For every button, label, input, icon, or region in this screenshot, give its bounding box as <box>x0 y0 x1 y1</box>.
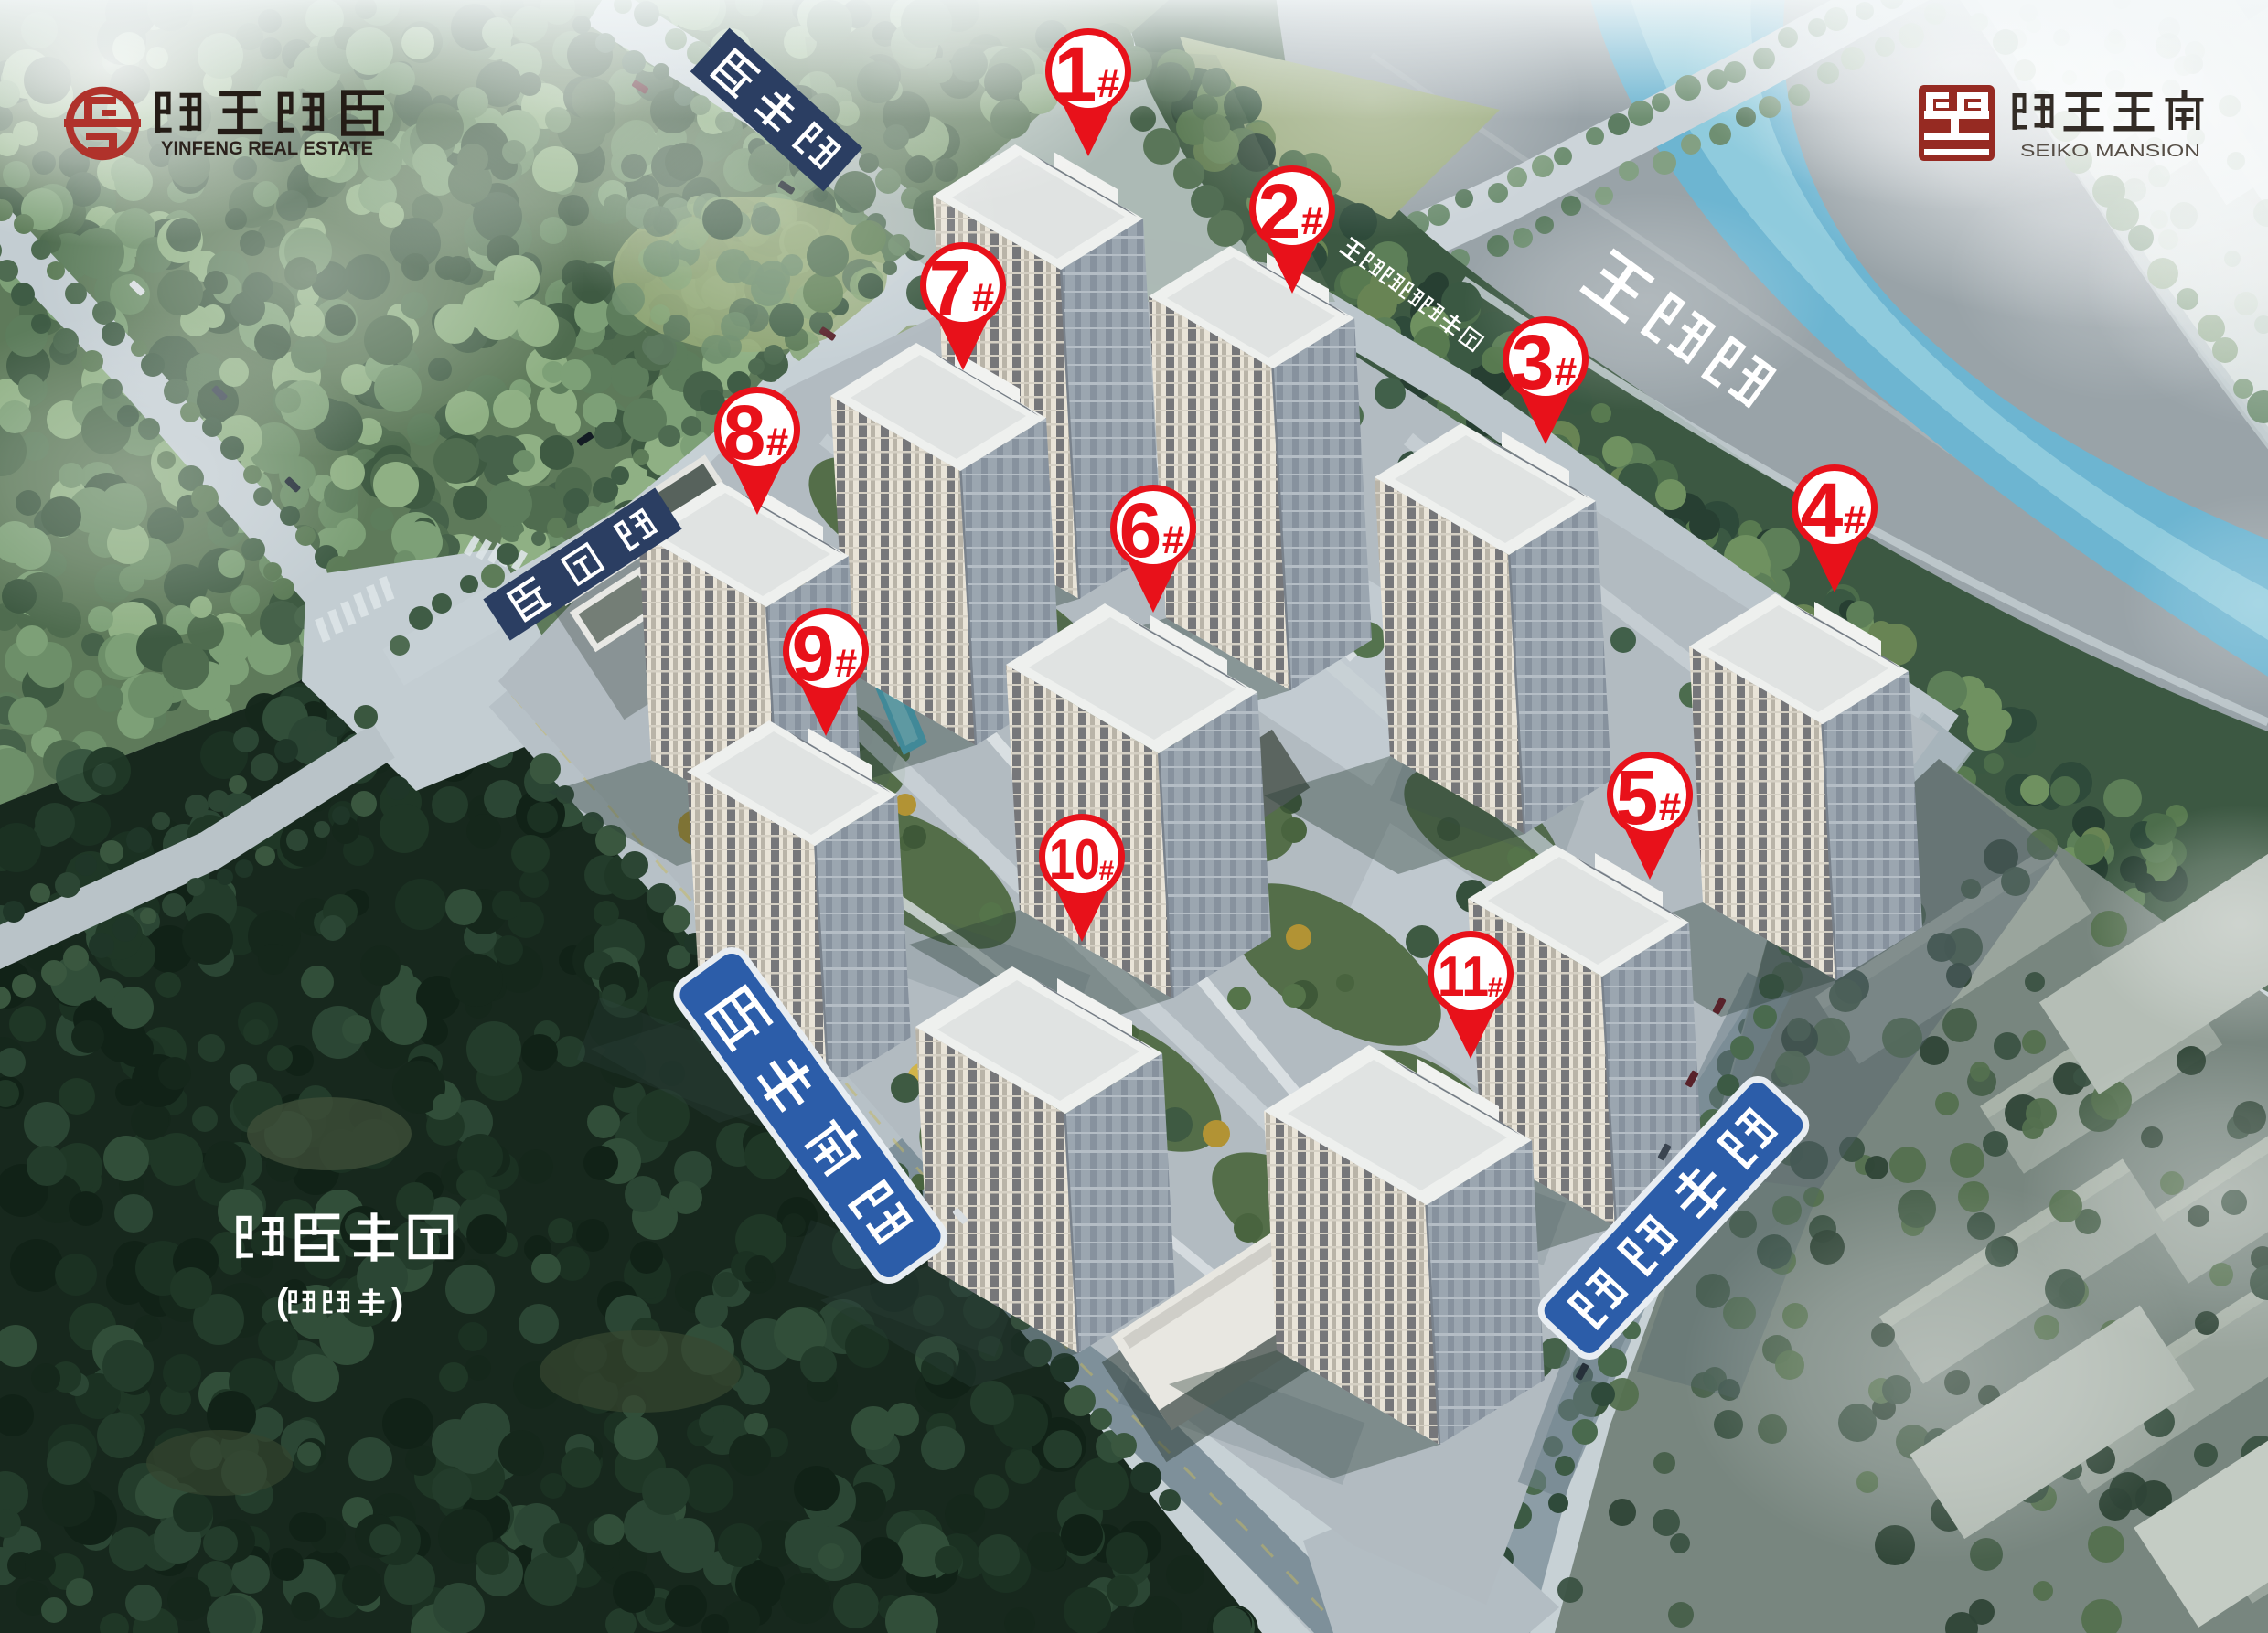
svg-text:#: # <box>835 641 857 686</box>
svg-text:4: 4 <box>1801 467 1844 553</box>
svg-text:#: # <box>1488 973 1503 1003</box>
svg-text:3: 3 <box>1512 319 1555 405</box>
svg-text:YINFENG REAL ESTATE: YINFENG REAL ESTATE <box>161 138 373 159</box>
svg-text:1: 1 <box>1054 31 1097 117</box>
svg-text:#: # <box>766 420 788 464</box>
svg-text:#: # <box>1555 349 1577 394</box>
svg-text:5: 5 <box>1616 754 1659 840</box>
svg-text:7: 7 <box>929 245 972 331</box>
svg-text:#: # <box>1659 784 1681 829</box>
svg-text:#: # <box>1162 518 1184 562</box>
svg-text:9: 9 <box>792 611 835 697</box>
svg-text:#: # <box>1301 198 1323 243</box>
svg-text:11: 11 <box>1438 945 1489 1009</box>
svg-text:#: # <box>1099 856 1115 886</box>
svg-text:#: # <box>972 275 994 320</box>
svg-text:6: 6 <box>1119 487 1162 573</box>
svg-text:10: 10 <box>1049 828 1100 891</box>
svg-text:#: # <box>1097 61 1119 106</box>
svg-text:8: 8 <box>723 390 766 475</box>
svg-text:2: 2 <box>1258 168 1301 254</box>
svg-text:#: # <box>1844 497 1866 542</box>
svg-text:SEIKO MANSION: SEIKO MANSION <box>2020 142 2200 160</box>
svg-text:(: ( <box>276 1282 289 1322</box>
svg-text:): ) <box>391 1282 403 1322</box>
